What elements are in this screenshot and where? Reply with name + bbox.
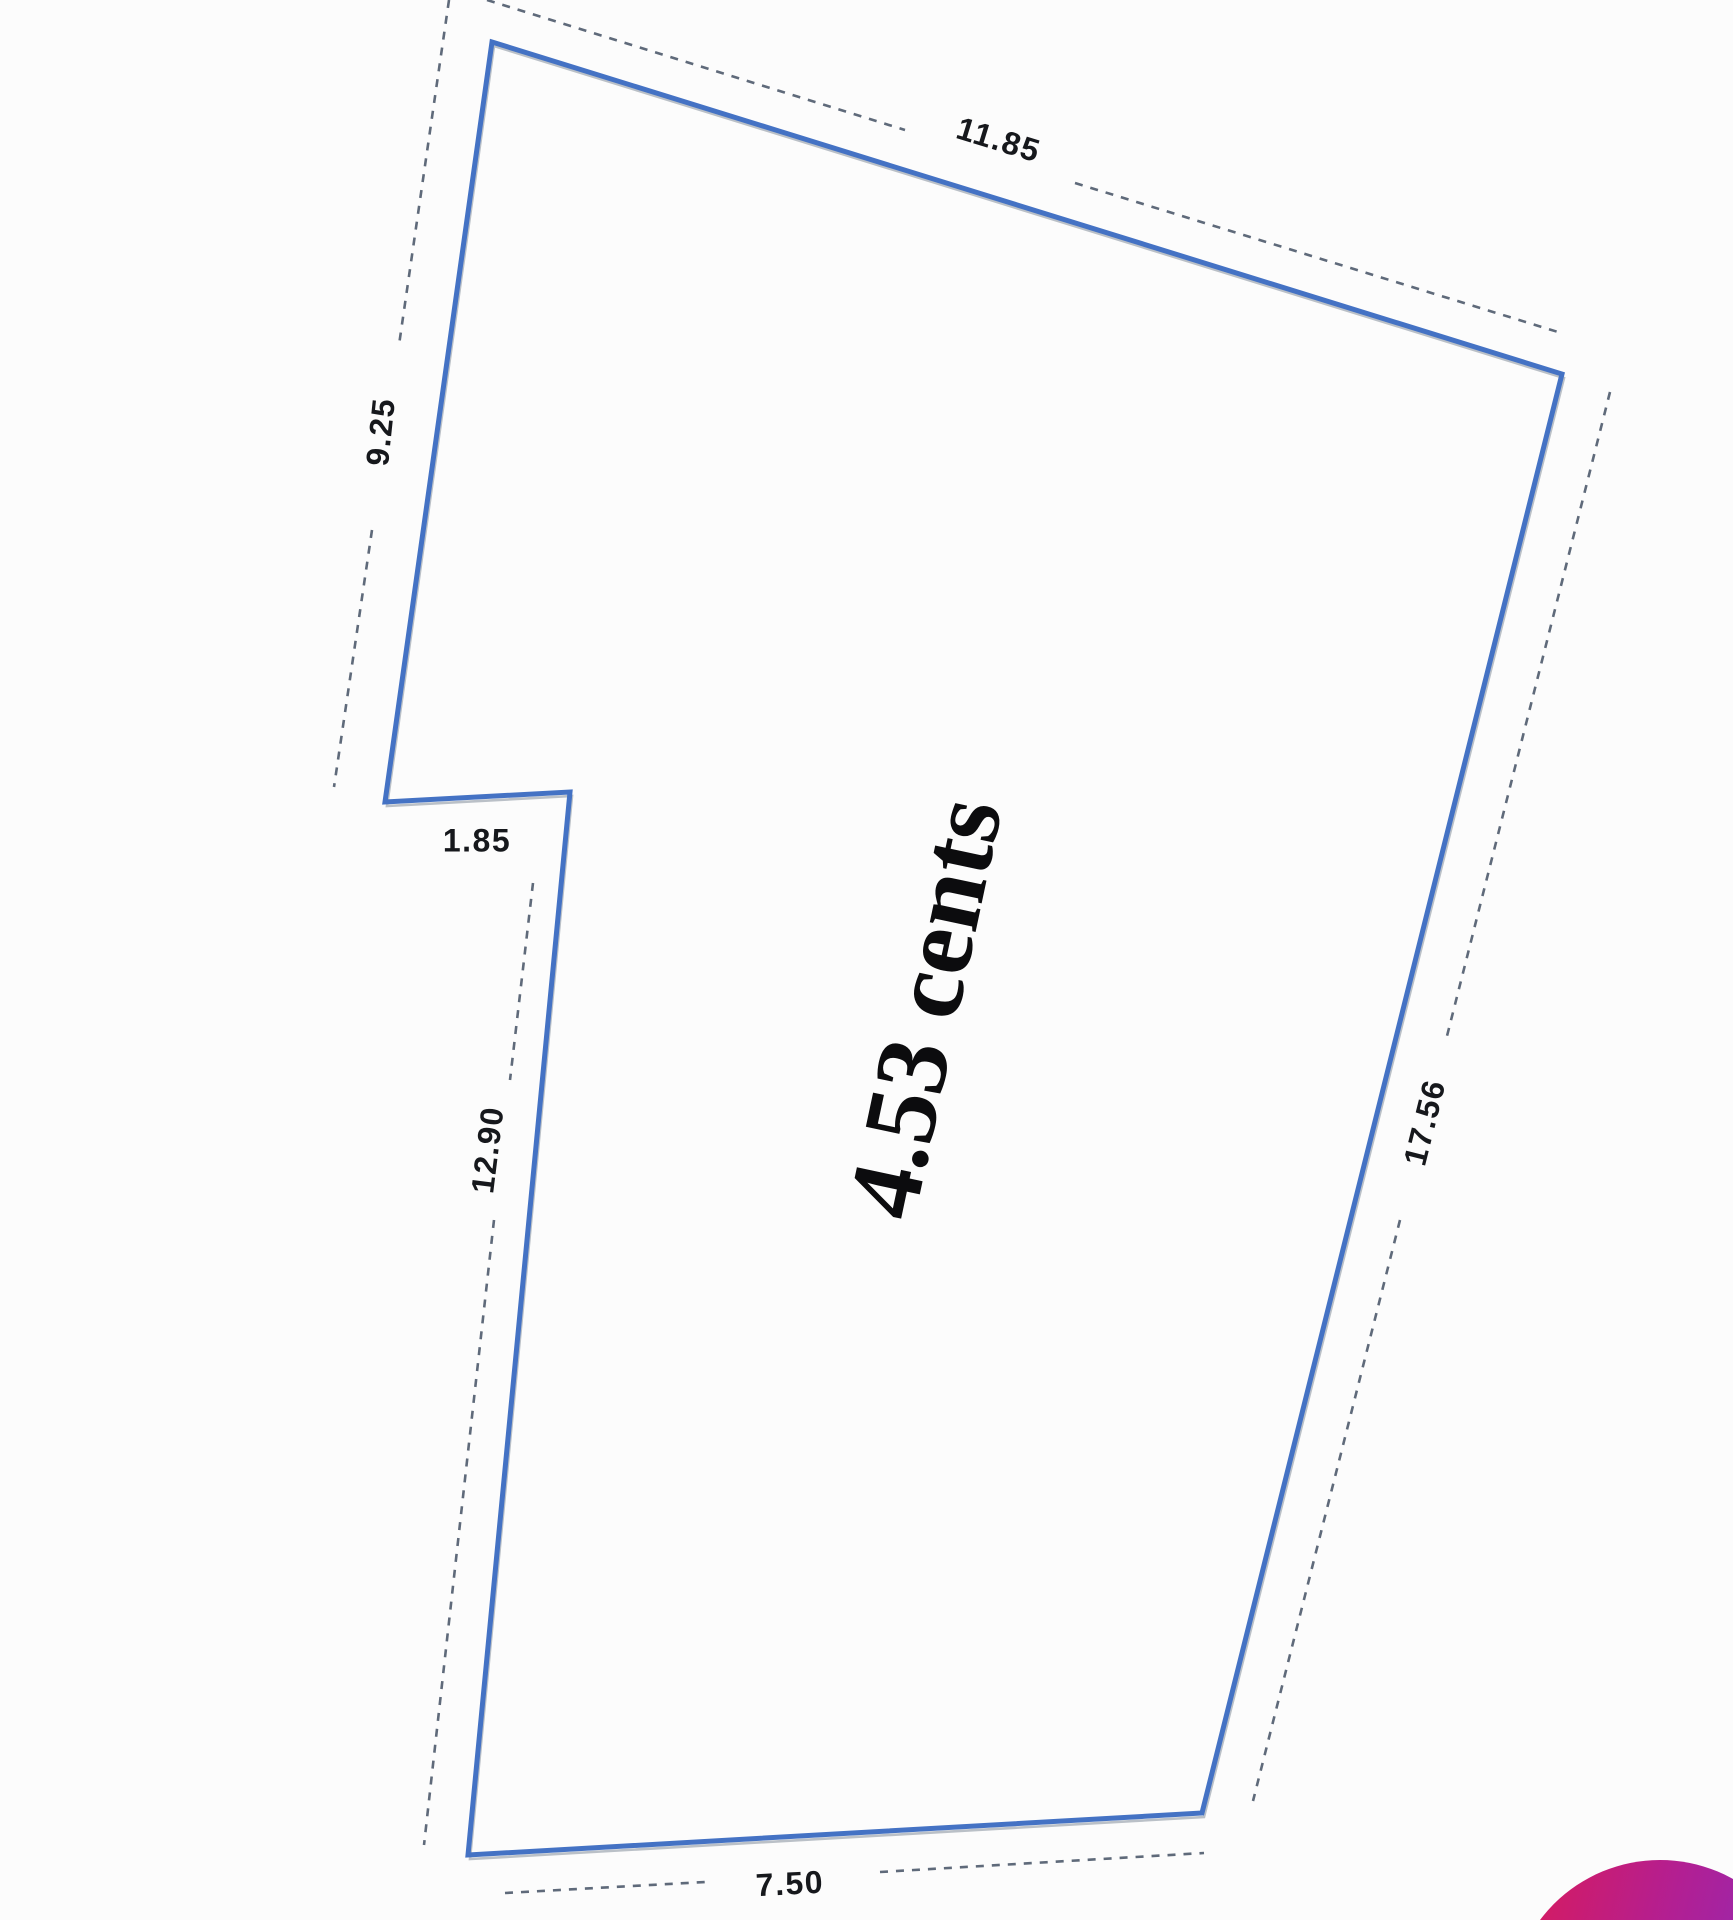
dimension-label-notch: 1.85 — [443, 822, 511, 858]
plot-diagram: 11.85 9.25 1.85 12.90 7.50 17.56 4.53 ce… — [0, 0, 1733, 1920]
dimension-label-bottom: 7.50 — [755, 1864, 825, 1904]
survey-sketch-page: 11.85 9.25 1.85 12.90 7.50 17.56 4.53 ce… — [0, 0, 1733, 1920]
dimension-label-left-upper: 9.25 — [359, 396, 402, 468]
paper-background — [0, 0, 1733, 1920]
